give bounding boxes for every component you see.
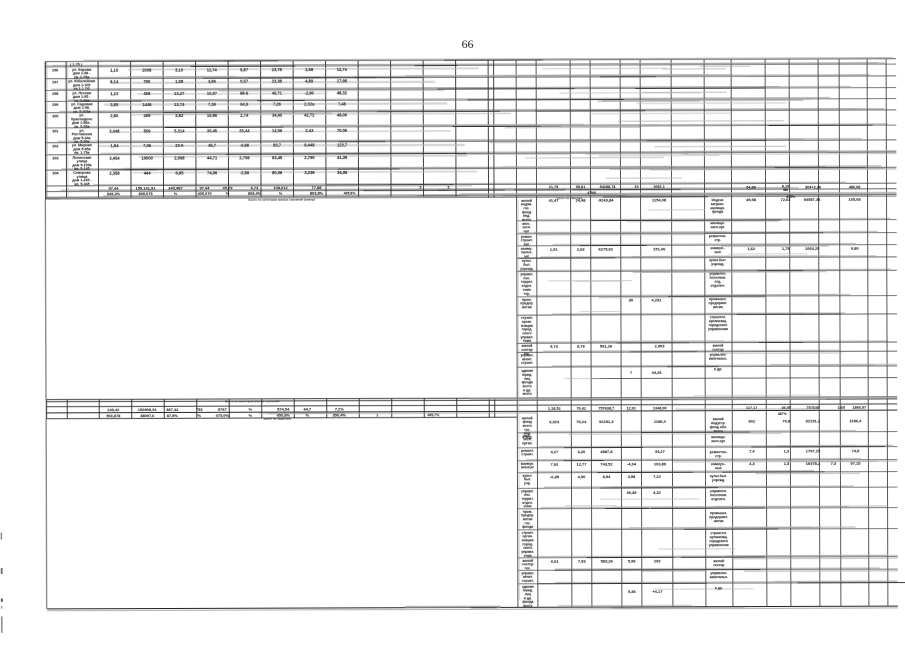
svg-text:0,57: 0,57 — [240, 79, 249, 84]
svg-text:Всего по категории жилых строе: Всего по категории жилых строений (замер… — [248, 197, 314, 201]
svg-text:ые: ые — [524, 254, 529, 258]
svg-text:44,7: 44,7 — [303, 406, 312, 411]
svg-text:46,95: 46,95 — [781, 406, 791, 410]
svg-text:1,23: 1,23 — [110, 91, 119, 96]
svg-text:%: % — [306, 412, 310, 417]
svg-text:97,44: 97,44 — [199, 185, 210, 190]
svg-text:1082,1: 1082,1 — [653, 185, 665, 189]
svg-text:458: 458 — [143, 91, 151, 96]
svg-text:-0,68: -0,68 — [240, 143, 250, 148]
svg-text:17,98: 17,98 — [337, 79, 348, 84]
svg-text:300: 300 — [52, 114, 58, 118]
svg-text:1,58: 1,58 — [305, 67, 314, 72]
svg-text:23-0: 23-0 — [175, 143, 184, 148]
svg-text:66: 66 — [462, 37, 474, 51]
svg-text:-6,85: -6,85 — [550, 474, 560, 479]
svg-text:77,88: 77,88 — [311, 185, 322, 190]
svg-text:1446: 1446 — [142, 102, 152, 107]
svg-text:10: 10 — [634, 185, 638, 189]
svg-text:6,95: 6,95 — [175, 171, 184, 176]
svg-text:сектор: сектор — [713, 563, 724, 567]
svg-text:151,06: 151,06 — [653, 247, 666, 252]
svg-text:48,06: 48,06 — [337, 113, 348, 118]
svg-text:103,89: 103,89 — [654, 461, 667, 466]
svg-text:1797,15: 1797,15 — [806, 448, 821, 453]
svg-text:304: 304 — [52, 172, 59, 176]
svg-text:кв. 5-345: кв. 5-345 — [74, 182, 89, 186]
svg-text:учр.: учр. — [524, 481, 531, 485]
svg-text:602: 602 — [748, 419, 755, 424]
svg-text:87,5%: 87,5% — [167, 413, 179, 418]
svg-text:капитальн.: капитальн. — [710, 575, 729, 579]
svg-text:503,878: 503,878 — [106, 413, 121, 418]
svg-text:2,098: 2,098 — [174, 155, 185, 160]
svg-text:803,8%: 803,8% — [310, 191, 324, 196]
svg-text:10,96: 10,96 — [207, 113, 218, 118]
svg-text:9,80: 9,80 — [851, 246, 860, 251]
svg-text:949,4%: 949,4% — [107, 191, 121, 196]
svg-text:9,14: 9,14 — [110, 79, 119, 84]
svg-text:5,36: 5,36 — [628, 589, 637, 594]
svg-text:444: 444 — [144, 171, 152, 176]
svg-text:21,75: 21,75 — [549, 185, 559, 189]
svg-text:3,236: 3,236 — [304, 170, 315, 175]
svg-text:3,10: 3,10 — [175, 67, 184, 72]
svg-text:149,42: 149,42 — [107, 407, 120, 412]
svg-text:92151,3: 92151,3 — [599, 419, 614, 424]
svg-text:343,487: 343,487 — [168, 186, 183, 191]
svg-text:150.141,91: 150.141,91 — [135, 186, 156, 191]
svg-text:80,06: 80,06 — [272, 170, 283, 175]
svg-text:41,39: 41,39 — [337, 155, 348, 160]
svg-text:45,79: 45,79 — [222, 185, 233, 190]
svg-text:54587,36: 54587,36 — [804, 197, 821, 202]
svg-text:ения: ения — [524, 554, 532, 558]
svg-text:6,61: 6,61 — [551, 559, 560, 564]
svg-text:строит.: строит. — [521, 361, 533, 365]
svg-text:1,65: 1,65 — [838, 406, 845, 410]
svg-text:7,39: 7,39 — [208, 102, 217, 107]
svg-text:тер.: тер. — [524, 292, 531, 296]
svg-text:гос.: гос. — [525, 566, 531, 570]
svg-text:1,3: 1,3 — [784, 448, 790, 453]
svg-text:2,32а: 2,32а — [304, 101, 315, 106]
svg-text:70,24: 70,24 — [576, 419, 587, 424]
svg-text:23,38: 23,38 — [272, 79, 283, 84]
svg-text:-2,90: -2,90 — [305, 90, 315, 95]
svg-text:2,80: 2,80 — [110, 113, 119, 118]
svg-text:1,10: 1,10 — [110, 68, 119, 73]
svg-text:ения: ения — [523, 339, 531, 343]
svg-text:1: 1 — [376, 413, 378, 417]
svg-text:42,72: 42,72 — [304, 113, 315, 118]
svg-text:5,314: 5,314 — [174, 128, 185, 133]
svg-text:9,448: 9,448 — [304, 143, 315, 148]
svg-text:учрежд.: учрежд. — [712, 478, 725, 482]
svg-text:7,3: 7,3 — [831, 461, 837, 466]
svg-text:учрежд.: учрежд. — [520, 267, 533, 271]
svg-text:74,06: 74,06 — [207, 170, 218, 175]
svg-text:70,06: 70,06 — [337, 128, 348, 133]
svg-text:ные: ные — [715, 466, 722, 470]
svg-text:74,8: 74,8 — [851, 448, 860, 453]
svg-text:301: 301 — [52, 129, 58, 133]
svg-text:583,26: 583,26 — [601, 559, 614, 564]
svg-text:495,7%: 495,7% — [427, 413, 440, 417]
svg-text:64,9: 64,9 — [240, 102, 249, 107]
svg-text:2,63: 2,63 — [577, 247, 586, 252]
svg-text:10000: 10000 — [141, 155, 153, 160]
svg-text:2,92: 2,92 — [175, 113, 184, 118]
svg-text:92151,3: 92151,3 — [806, 418, 821, 423]
svg-text:1,75: 1,75 — [782, 246, 791, 251]
svg-text:387,42: 387,42 — [166, 407, 179, 412]
svg-text:2008: 2008 — [142, 67, 152, 72]
svg-text:7,26: 7,26 — [273, 102, 282, 107]
svg-text:299: 299 — [52, 103, 58, 107]
svg-text:фонда: фонда — [712, 210, 723, 214]
svg-text:1,62: 1,62 — [747, 246, 756, 251]
svg-text:иятия: иятия — [714, 519, 724, 523]
svg-text:7,93: 7,93 — [578, 559, 587, 564]
svg-text:95,81: 95,81 — [576, 185, 586, 189]
svg-text:303: 303 — [52, 156, 58, 160]
svg-text:эксп.орг.: эксп.орг. — [710, 225, 725, 229]
svg-text:33,44: 33,44 — [239, 128, 250, 133]
svg-text:24,48: 24,48 — [576, 198, 587, 203]
svg-text:34,45: 34,45 — [272, 113, 283, 118]
svg-text:строит.: строит. — [522, 579, 534, 583]
svg-text:1,3: 1,3 — [784, 461, 790, 466]
svg-text:%: % — [279, 191, 283, 196]
svg-text:97,44: 97,44 — [108, 186, 119, 191]
svg-text:54,88: 54,88 — [746, 185, 756, 189]
svg-text:41,47: 41,47 — [549, 198, 560, 203]
svg-text:орган.: орган. — [522, 441, 533, 445]
svg-text:475,0%: 475,0% — [216, 413, 230, 418]
svg-text:70,41: 70,41 — [576, 406, 586, 410]
svg-text:4,90: 4,90 — [578, 474, 587, 479]
svg-text:12,74: 12,74 — [337, 67, 348, 72]
svg-text:всего: всего — [523, 604, 532, 608]
svg-text:790: 790 — [143, 79, 151, 84]
svg-text:38097,6: 38097,6 — [140, 413, 155, 418]
svg-text:34,06: 34,06 — [337, 170, 348, 175]
svg-text:5,87: 5,87 — [240, 67, 249, 72]
svg-text:72,63: 72,63 — [781, 197, 792, 202]
svg-text:44,71: 44,71 — [207, 155, 218, 160]
svg-text:4,89: 4,89 — [305, 79, 314, 84]
svg-text:480: 480 — [783, 188, 789, 192]
svg-text:кв. 1-75а: кв. 1-75а — [74, 151, 90, 155]
svg-text:150908,91: 150908,91 — [138, 407, 158, 412]
svg-text:2,790: 2,790 — [304, 155, 315, 160]
svg-text:1003,25: 1003,25 — [805, 246, 820, 251]
svg-text:отделен.: отделен. — [711, 497, 726, 501]
svg-text:350,4%: 350,4% — [333, 412, 347, 417]
svg-text:7,48: 7,48 — [338, 101, 347, 106]
svg-text:117,17: 117,17 — [746, 406, 757, 410]
svg-text:70,8: 70,8 — [782, 418, 791, 423]
svg-text:574,54: 574,54 — [277, 406, 290, 411]
svg-text:757638,7: 757638,7 — [598, 406, 614, 410]
svg-text:4,59: 4,59 — [208, 79, 217, 84]
svg-text:475/5: 475/5 — [587, 191, 596, 195]
svg-text:4587,8: 4587,8 — [600, 449, 613, 454]
svg-text:%: % — [249, 413, 253, 418]
svg-text:487%: 487% — [778, 412, 787, 416]
svg-text:фонда: фонда — [522, 525, 533, 529]
svg-text:ения: ения — [524, 504, 532, 508]
svg-text:165,08: 165,08 — [848, 197, 861, 202]
svg-text:4,3: 4,3 — [749, 461, 755, 466]
svg-text:и др.: и др. — [714, 367, 722, 371]
svg-text:4,231: 4,231 — [651, 297, 662, 302]
svg-text:1,94: 1,94 — [110, 143, 119, 148]
svg-text:34,27: 34,27 — [655, 449, 666, 454]
svg-text:3,448: 3,448 — [109, 129, 120, 134]
svg-text:298: 298 — [52, 92, 58, 96]
svg-text:12,91: 12,91 — [626, 406, 636, 410]
svg-text:269: 269 — [144, 113, 152, 118]
svg-text:4,27: 4,27 — [550, 449, 559, 454]
svg-text:1186,4: 1186,4 — [654, 419, 667, 424]
svg-text:капитальн.: капитальн. — [709, 357, 728, 361]
svg-text:753: 753 — [196, 407, 203, 412]
svg-text:1,18,52: 1,18,52 — [548, 407, 561, 411]
svg-text:45,7: 45,7 — [208, 143, 217, 148]
svg-text:2,003: 2,003 — [655, 344, 666, 349]
svg-text:49,58: 49,58 — [746, 197, 757, 202]
svg-text:296: 296 — [52, 68, 58, 72]
svg-text:Всего по кварталу: Всего по кварталу — [264, 416, 292, 420]
svg-text:-4,04: -4,04 — [627, 461, 637, 466]
svg-text:1348,00: 1348,00 — [653, 406, 667, 410]
svg-text:16478,2: 16478,2 — [806, 461, 821, 466]
svg-text:44,26: 44,26 — [652, 370, 663, 375]
svg-text:743,52: 743,52 — [600, 462, 613, 467]
svg-text:ные: ные — [714, 250, 721, 254]
svg-text:3,26: 3,26 — [577, 449, 586, 454]
svg-text:%: % — [226, 191, 230, 196]
svg-text:30: 30 — [629, 297, 634, 302]
svg-text:8,76: 8,76 — [577, 344, 586, 349]
svg-text:297: 297 — [52, 80, 58, 84]
svg-text:7,1%: 7,1% — [335, 406, 345, 411]
svg-text:3,454: 3,454 — [109, 155, 120, 160]
svg-text:304+2,26: 304+2,26 — [805, 185, 821, 189]
svg-text:302: 302 — [52, 144, 58, 148]
svg-text:1186,4: 1186,4 — [849, 418, 862, 423]
svg-text:+4,17: +4,17 — [652, 589, 663, 594]
svg-text:6,023: 6,023 — [549, 419, 560, 424]
svg-text:всего: всего — [523, 392, 532, 396]
svg-text:иятия: иятия — [713, 305, 723, 309]
svg-text:5: 5 — [448, 186, 450, 190]
svg-text:Всего по категории жилых строе: Всего по категории жилых строений — [225, 399, 280, 403]
svg-text:2,358: 2,358 — [109, 171, 120, 176]
svg-text:11,74: 11,74 — [207, 67, 218, 72]
svg-text:30,39: 30,39 — [627, 490, 638, 495]
svg-text:7,92: 7,92 — [551, 462, 560, 467]
svg-text:108,012: 108,012 — [273, 185, 288, 190]
svg-text:строит.: строит. — [521, 452, 533, 456]
svg-text:%: % — [248, 407, 252, 412]
svg-text:12,77: 12,77 — [576, 462, 587, 467]
svg-text:%: % — [174, 191, 178, 196]
svg-text:5,96: 5,96 — [628, 559, 637, 564]
svg-text:учрежд.: учрежд. — [711, 262, 724, 266]
svg-text:орг.: орг. — [524, 229, 530, 233]
svg-text:405,070: 405,070 — [197, 191, 211, 196]
svg-text:591,26: 591,26 — [600, 344, 613, 349]
svg-text:2,758: 2,758 — [239, 155, 250, 160]
svg-text:97,15: 97,15 — [850, 461, 861, 466]
svg-text:5: 5 — [420, 186, 422, 190]
svg-text:9767: 9767 — [218, 407, 228, 412]
svg-text:всего: всего — [714, 429, 723, 433]
svg-text:-2,59: -2,59 — [240, 170, 250, 175]
svg-text:1,91: 1,91 — [550, 247, 559, 252]
svg-text:3,85: 3,85 — [110, 102, 119, 107]
svg-text:сектор: сектор — [712, 347, 723, 351]
svg-text:управления: управления — [708, 327, 728, 331]
svg-text:808,4%: 808,4% — [248, 191, 262, 196]
svg-text:4,98: 4,98 — [628, 474, 637, 479]
svg-text:809,075: 809,075 — [138, 191, 153, 196]
svg-text:13,27: 13,27 — [174, 91, 185, 96]
svg-text:7,22: 7,22 — [653, 474, 662, 479]
svg-text:1,58: 1,58 — [175, 79, 184, 84]
svg-text:292: 292 — [654, 559, 661, 564]
svg-text:54288,74: 54288,74 — [600, 185, 617, 189]
svg-text:альные: альные — [521, 465, 534, 469]
svg-text:30,45: 30,45 — [207, 128, 218, 133]
svg-text:4,32: 4,32 — [653, 490, 662, 495]
svg-text:стр.: стр. — [715, 454, 722, 458]
svg-text:9,73: 9,73 — [550, 344, 559, 349]
svg-text:10,97: 10,97 — [207, 91, 218, 96]
svg-text:7,4: 7,4 — [749, 448, 755, 453]
svg-text:6275,02: 6275,02 — [598, 247, 613, 252]
svg-text:14,06: 14,06 — [272, 128, 283, 133]
svg-text:48,32: 48,32 — [337, 90, 348, 95]
svg-text:1866,97: 1866,97 — [852, 405, 866, 409]
svg-text:1154,08: 1154,08 — [652, 197, 667, 202]
svg-text:13,74: 13,74 — [174, 102, 185, 107]
svg-text:98-6: 98-6 — [240, 91, 249, 96]
svg-text:иятия: иятия — [522, 305, 532, 309]
svg-text:495,8%: 495,8% — [344, 192, 357, 196]
svg-text:и др.: и др. — [715, 586, 723, 590]
svg-text:123,7: 123,7 — [337, 143, 348, 148]
svg-text:480,08: 480,08 — [849, 185, 861, 189]
svg-text:8,94: 8,94 — [603, 474, 612, 479]
svg-text:757638: 757638 — [806, 406, 819, 410]
svg-text:2,74: 2,74 — [240, 113, 249, 118]
svg-text:стр.: стр. — [714, 238, 721, 242]
svg-text:83,7: 83,7 — [273, 143, 282, 148]
svg-text:( 1-75 ): ( 1-75 ) — [70, 63, 83, 67]
svg-text:отделен.: отделен. — [711, 284, 726, 288]
svg-text:6,73: 6,73 — [251, 185, 260, 190]
svg-text:23,78: 23,78 — [272, 67, 283, 72]
svg-text:эксп.орг.: эксп.орг. — [711, 439, 726, 443]
svg-text:7,06: 7,06 — [143, 143, 152, 148]
svg-text:управления: управления — [709, 543, 729, 547]
svg-text:2,43: 2,43 — [305, 128, 314, 133]
svg-text:%: % — [198, 413, 202, 418]
svg-text:-9243,84: -9243,84 — [598, 198, 615, 203]
svg-text:83,49: 83,49 — [272, 155, 283, 160]
svg-text:559: 559 — [144, 128, 152, 133]
svg-text:40,71: 40,71 — [272, 91, 283, 96]
